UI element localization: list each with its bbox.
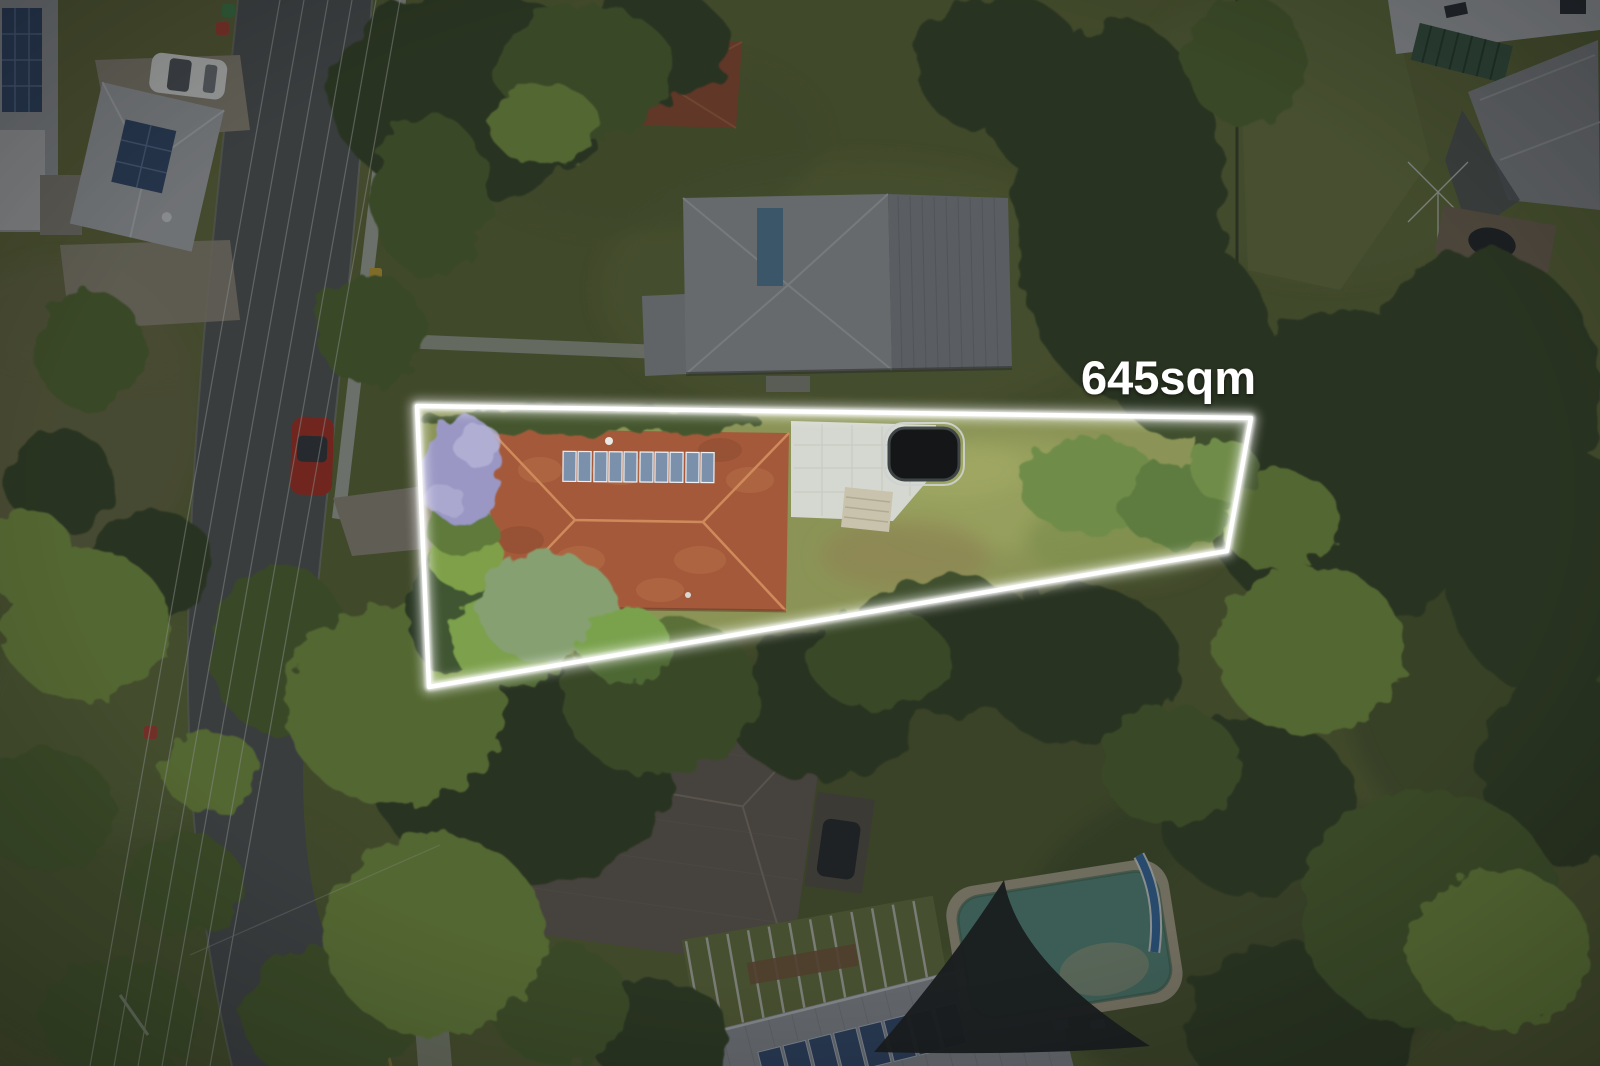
area-label: 645sqm (1081, 351, 1256, 404)
aerial-photo: 645sqm (0, 0, 1600, 1066)
aerial-photo-canvas: 645sqm (0, 0, 1600, 1066)
